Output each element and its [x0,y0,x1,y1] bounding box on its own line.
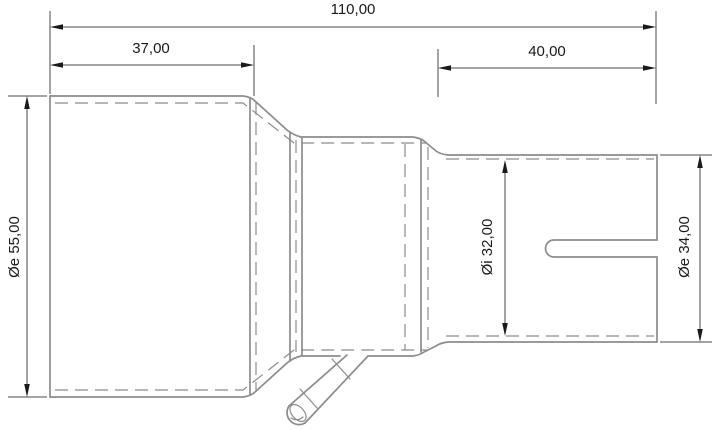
dim-label-total-length: 110,00 [331,1,376,18]
extension-lines [8,11,712,397]
dimension-arrows [24,24,703,397]
part-outline [50,96,657,397]
dimension-lines [27,27,700,395]
drain-tube [287,355,368,425]
dim-label-right-section: 40,00 [528,43,566,60]
dim-label-left-outer-diameter: Øe 55,00 [6,216,23,278]
end-slot [546,240,658,257]
technical-drawing-canvas: 110,00 37,00 40,00 Øe 55,00 Øi 32,00 Øe … [0,0,720,430]
dim-label-inner-diameter: Øi 32,00 [479,219,496,276]
dim-label-left-section: 37,00 [132,40,170,57]
dimension-labels: 110,00 37,00 40,00 Øe 55,00 Øi 32,00 Øe … [6,1,693,278]
hidden-lines [55,102,654,392]
dim-label-right-outer-diameter: Øe 34,00 [676,216,693,278]
technical-drawing-page: 110,00 37,00 40,00 Øe 55,00 Øi 32,00 Øe … [0,0,720,430]
